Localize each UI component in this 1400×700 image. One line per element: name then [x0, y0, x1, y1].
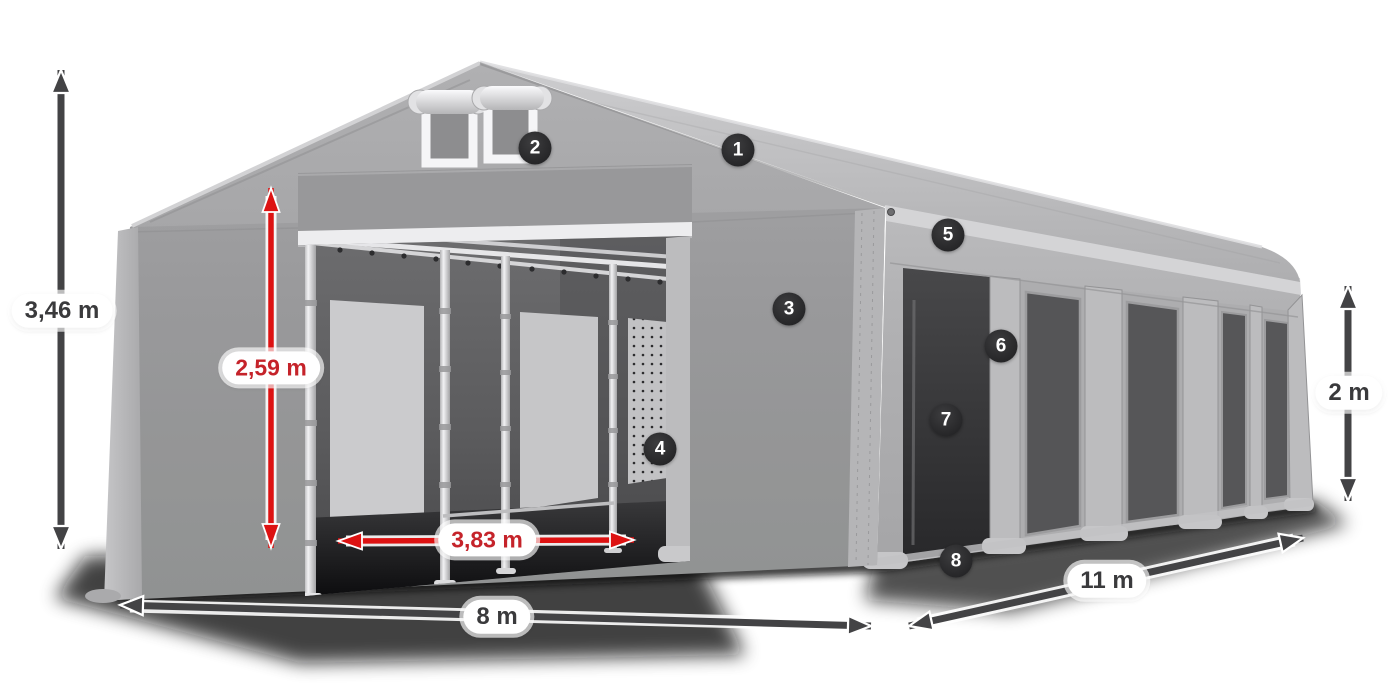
entrance-width-label: 3,83 m — [438, 523, 536, 556]
hotspot-marker-7[interactable]: 7 — [930, 404, 963, 437]
side-window — [1026, 292, 1080, 535]
total-height-label: 3,46 m — [12, 294, 113, 328]
side-length-label: 11 m — [1067, 564, 1146, 598]
tent-illustration — [0, 0, 1400, 700]
side-window — [1222, 312, 1246, 508]
side-wall-height-label: 2 m — [1315, 376, 1382, 410]
hotspot-marker-8[interactable]: 8 — [940, 545, 973, 578]
hotspot-marker-1[interactable]: 1 — [722, 134, 755, 167]
hotspot-marker-6[interactable]: 6 — [985, 330, 1018, 363]
inner-height-label: 2,59 m — [222, 351, 320, 384]
hotspot-marker-4[interactable]: 4 — [644, 433, 677, 466]
hotspot-marker-2[interactable]: 2 — [519, 132, 552, 165]
front-width-label: 8 m — [463, 600, 530, 634]
tent-dimensions-figure: 3,46 m 2,59 m 3,83 m 8 m 11 m 2 m 1 2 3 … — [0, 0, 1400, 700]
vent-roll — [416, 90, 482, 114]
vent-roll — [480, 86, 544, 110]
side-window — [1127, 302, 1178, 522]
side-window — [1265, 320, 1288, 499]
grommet — [888, 209, 895, 216]
hotspot-marker-3[interactable]: 3 — [773, 293, 806, 326]
hotspot-marker-5[interactable]: 5 — [932, 219, 965, 252]
interior-window — [520, 312, 598, 510]
